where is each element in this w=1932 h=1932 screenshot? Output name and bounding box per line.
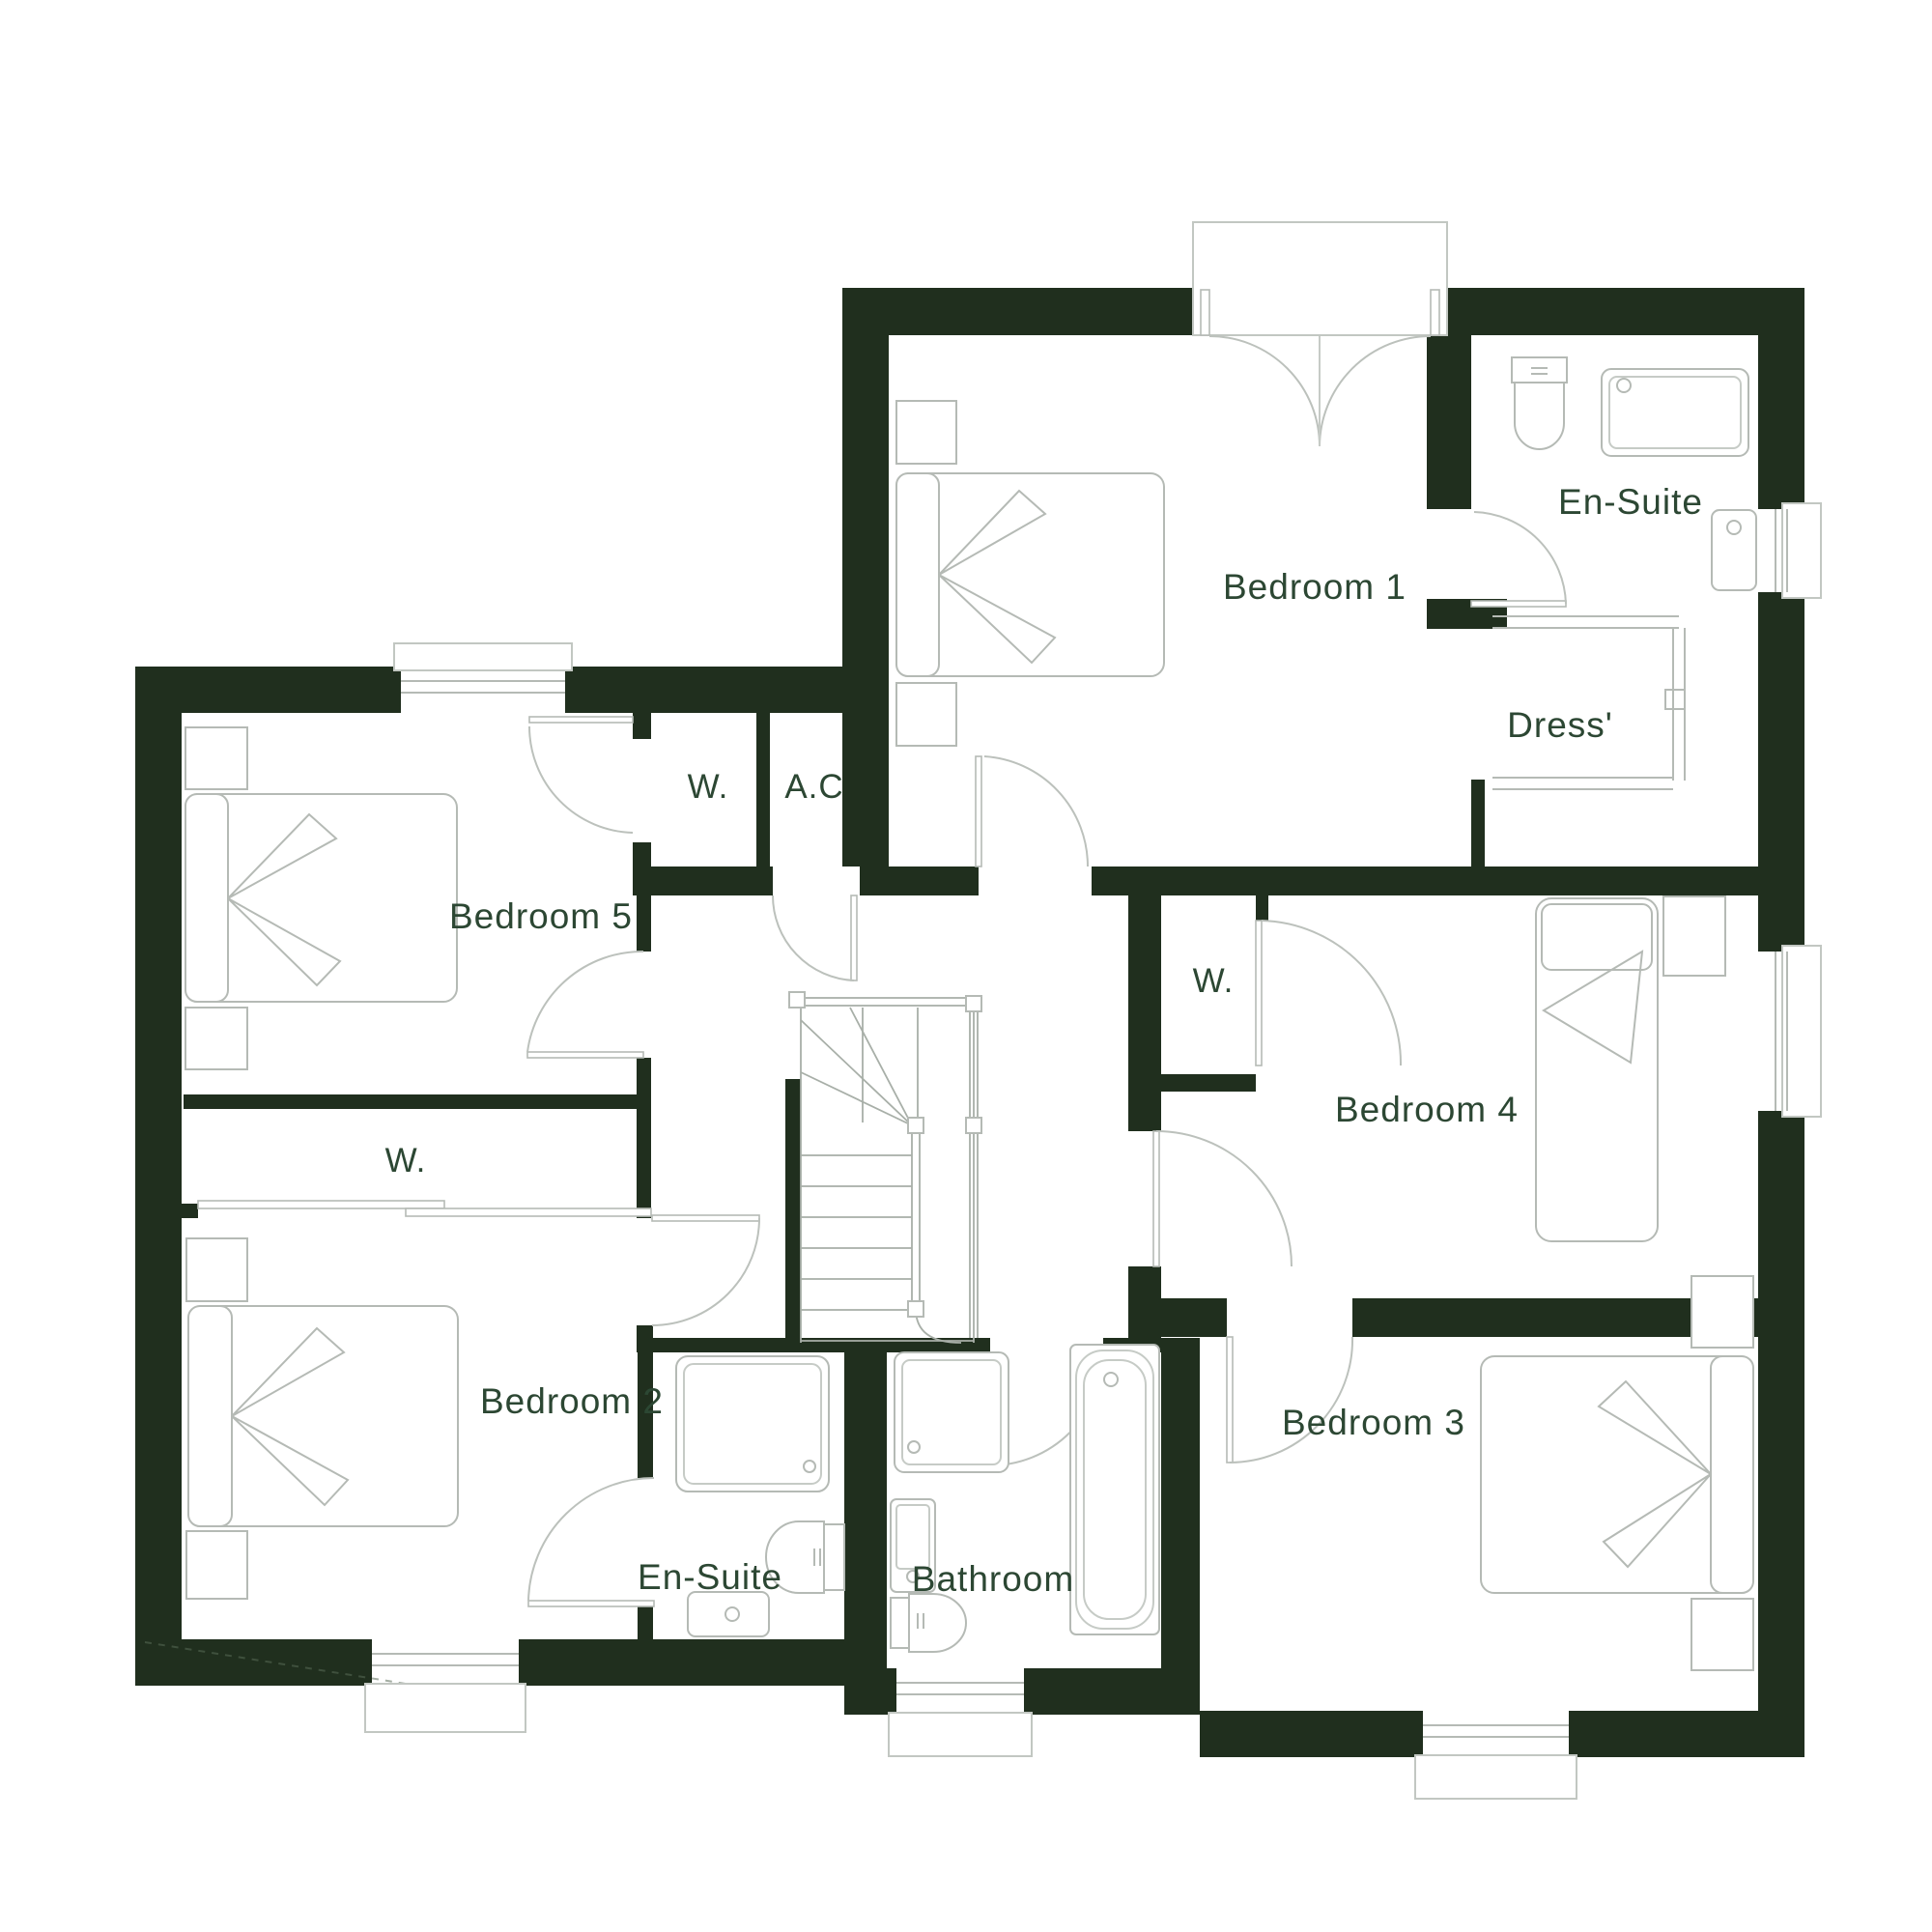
shower-icon <box>1602 369 1748 456</box>
door-ensuite1 <box>1471 512 1566 607</box>
door-bedroom3 <box>1227 1337 1352 1463</box>
wall-segment <box>565 667 889 713</box>
toilet-icon <box>1512 357 1567 449</box>
room-label-bedroom-4: Bedroom 4 <box>1335 1090 1519 1129</box>
double-bed-bedroom5 <box>185 727 457 1069</box>
wall-segment <box>1256 889 1268 921</box>
wall-segment <box>842 288 1201 335</box>
wall-segment <box>633 842 651 867</box>
wall-segment <box>1427 335 1471 509</box>
toilet-icon <box>891 1594 966 1652</box>
wall-segment <box>1758 592 1804 952</box>
wall-segment <box>844 1352 887 1668</box>
wall-segment <box>842 335 889 867</box>
room-label-closet-w-left: W. <box>385 1142 427 1179</box>
door-bedroom2 <box>652 1215 759 1325</box>
basin-icon <box>688 1592 769 1636</box>
wall-segment <box>1161 1338 1200 1715</box>
door-bedroom4 <box>1153 1131 1292 1266</box>
wall-segment <box>638 1604 653 1639</box>
wall-segment <box>637 1058 651 1218</box>
window-bedroom2 <box>365 1654 526 1732</box>
room-label-bedroom-3: Bedroom 3 <box>1282 1403 1465 1442</box>
room-label-closet-w1: W. <box>688 768 729 806</box>
wall-segment <box>633 867 773 895</box>
room-label-ensuite-2: En-Suite <box>638 1557 782 1597</box>
wall-segment <box>182 1204 198 1218</box>
door-closet-bedroom5 <box>529 717 633 833</box>
bathtub-icon <box>1070 1345 1159 1634</box>
wall-segment <box>135 667 401 713</box>
double-bed-bedroom2 <box>186 1238 458 1599</box>
wall-segment <box>184 1094 651 1109</box>
basin-icon <box>1712 510 1756 590</box>
wall-segment <box>844 1668 896 1715</box>
door-closet-bedroom4 <box>1256 921 1401 1065</box>
wardrobe-shelving <box>1492 616 1685 789</box>
door-ensuite2 <box>528 1478 654 1606</box>
wall-segment <box>1128 1298 1227 1337</box>
sliding-wardrobe-doors <box>198 1201 651 1216</box>
window-ensuite1 <box>1776 503 1821 598</box>
wall-segment <box>1439 288 1804 335</box>
window-bathroom <box>889 1683 1032 1756</box>
staircase <box>789 992 981 1343</box>
bathroom-fixtures <box>891 1345 1159 1652</box>
ensuite1-fixtures <box>1512 357 1756 590</box>
window-bedroom3 <box>1415 1725 1577 1799</box>
wall-segment <box>1161 1074 1256 1092</box>
wall-segment <box>1471 780 1485 867</box>
room-label-ensuite-1: En-Suite <box>1558 482 1703 522</box>
room-label-bathroom: Bathroom <box>912 1559 1074 1599</box>
room-label-airing-cupboard: A.C <box>784 768 843 806</box>
room-label-closet-w2: W. <box>1193 962 1235 1000</box>
door-airing-cupboard <box>773 895 857 980</box>
window-bedroom5 <box>394 643 572 693</box>
wall-segment <box>633 713 651 739</box>
wall-segment <box>756 713 770 867</box>
wall-segment <box>785 1079 801 1338</box>
wall-segment <box>1569 1711 1804 1757</box>
wall-segment <box>135 713 182 1686</box>
wall-segment <box>1758 335 1804 509</box>
window-bedroom4 <box>1776 946 1821 1117</box>
single-bed-bedroom4 <box>1536 896 1725 1241</box>
floor-plan: Bedroom 1 En-Suite Dress' W. A.C Bedroom… <box>0 0 1932 1932</box>
wall-segment <box>1092 867 1804 895</box>
room-label-bedroom-1: Bedroom 1 <box>1223 567 1406 607</box>
door-bedroom5 <box>527 952 643 1058</box>
shower-icon <box>676 1356 829 1492</box>
wall-segment <box>135 1639 372 1686</box>
door-bedroom1 <box>976 756 1088 867</box>
double-entry-door <box>1193 222 1447 446</box>
wall-segment <box>860 867 979 895</box>
wall-segment <box>519 1639 844 1686</box>
wall-segment <box>1200 1711 1423 1757</box>
room-label-bedroom-5: Bedroom 5 <box>449 896 633 936</box>
shower-icon <box>895 1352 1009 1472</box>
room-label-bedroom-2: Bedroom 2 <box>480 1381 664 1421</box>
wall-segment <box>1758 1111 1804 1711</box>
furniture <box>185 357 1756 1670</box>
double-bed-bedroom1 <box>896 401 1164 746</box>
wall-segment <box>637 895 651 952</box>
room-label-dressing: Dress' <box>1507 705 1613 745</box>
wall-segment <box>1128 867 1161 1131</box>
